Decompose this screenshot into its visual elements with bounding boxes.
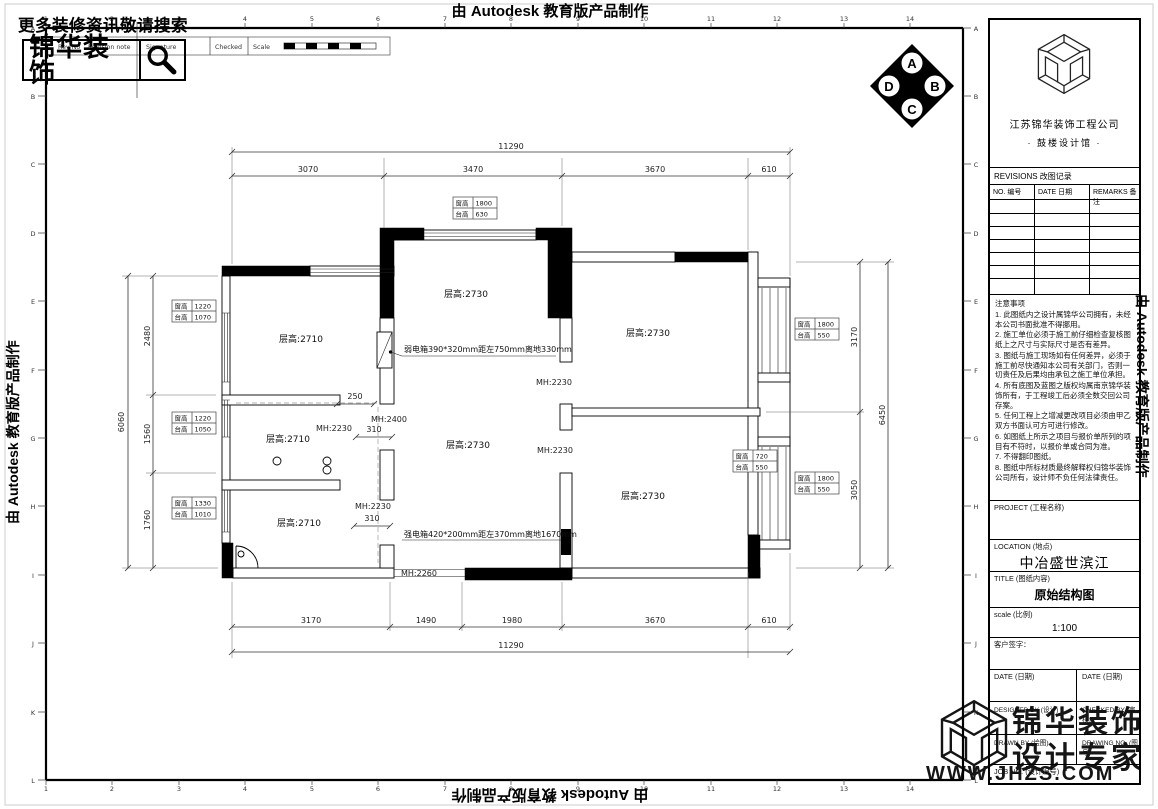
ruler-letter: B xyxy=(974,93,978,101)
brand-name: 锦华装饰 xyxy=(24,34,139,86)
ruler-letter: B xyxy=(31,93,35,101)
room-height-label: 层高:2730 xyxy=(446,439,490,451)
dim-label: 310 xyxy=(364,514,379,523)
sill-height-value: 550 xyxy=(818,332,830,340)
ruler-letter: F xyxy=(31,367,35,375)
room-height-label: 层高:2710 xyxy=(279,333,323,345)
window-table: 窗高 1800 台高 550 xyxy=(795,318,839,340)
sill-height-label: 台高 xyxy=(175,425,189,434)
dim-label: 1980 xyxy=(502,616,522,625)
ruler-letter: D xyxy=(973,230,978,238)
notes-panel: 注意事项 1. 此图纸内之设计属锦华公司拥有，未经本公司书面批准不得挪用。 2.… xyxy=(990,294,1139,500)
ruler-letters-left: A B C D E F G H I J K L xyxy=(30,25,35,785)
dim-label: 3170 xyxy=(850,327,859,347)
note-item: 4. 所有底图及蓝图之版权均属南京锦华装饰所有，于工程竣工后必须全数交回公司存案… xyxy=(995,381,1134,410)
company-cube-logo xyxy=(1032,32,1096,96)
sill-height-value: 1010 xyxy=(195,511,212,519)
dim-label: 11290 xyxy=(498,142,523,151)
ruler-number: 2 xyxy=(110,785,114,793)
door-height-label: MH:2230 xyxy=(536,378,572,387)
project-label: PROJECT (工程名称) xyxy=(990,501,1139,513)
location-value: 中冶盛世滨江 xyxy=(990,553,1139,573)
dim-label: 3070 xyxy=(298,165,318,174)
ruler-letter: F xyxy=(974,367,978,375)
north-compass: A B C D xyxy=(870,44,954,128)
sill-height-label: 台高 xyxy=(798,485,812,494)
window-table: 窗高 1330 台高 1010 xyxy=(172,497,216,519)
ruler-letter: L xyxy=(31,777,35,785)
plan-annotations: 弱电箱390*320mm距左750mm离地330mm 强电箱420*200mm距… xyxy=(404,344,577,539)
window-height-label: 窗高 xyxy=(798,320,812,329)
door-height-label: MH:2230 xyxy=(537,446,573,455)
ruler-letter: G xyxy=(973,435,978,443)
ruler-letter: K xyxy=(974,709,979,717)
door-height-label: MH:2230 xyxy=(316,424,352,433)
brand-search-logo: 锦华装饰 xyxy=(22,39,186,81)
room-height-label: 层高:2730 xyxy=(621,490,665,502)
room-height-label: 层高:2730 xyxy=(626,327,670,339)
plan-door-labels: MH:2230 MH:2400 MH:2230 MH:2230 MH:2230 … xyxy=(316,378,573,578)
sill-height-label: 台高 xyxy=(798,331,812,340)
designed-by-label: DESIGNED BY (设计) xyxy=(990,702,1078,714)
sill-height-value: 550 xyxy=(818,486,830,494)
drawn-by-label: DRAWN BY (绘图) xyxy=(990,735,1078,747)
dim-label: 1760 xyxy=(143,510,152,530)
window-height-value: 720 xyxy=(756,453,768,461)
dim-label: 610 xyxy=(761,165,776,174)
sill-height-value: 1050 xyxy=(195,426,212,434)
company-name: 江苏锦华装饰工程公司 xyxy=(990,116,1139,131)
ruler-letter: E xyxy=(31,298,35,306)
room-height-label: 层高:2710 xyxy=(277,517,321,529)
sill-height-value: 1070 xyxy=(195,314,212,322)
compass-letter-a: A xyxy=(907,56,917,71)
cad-sheet: 1 2 3 4 5 6 7 8 9 10 11 12 13 14 1 2 3 4… xyxy=(0,0,1158,809)
compass-letter-c: C xyxy=(907,102,917,117)
sill-height-label: 台高 xyxy=(456,210,470,219)
window-height-label: 窗高 xyxy=(456,199,470,208)
ruler-letter: J xyxy=(974,640,977,648)
ruler-letter: E xyxy=(974,298,978,306)
note-item: 1. 此图纸内之设计属锦华公司拥有，未经本公司书面批准不得挪用。 xyxy=(995,310,1134,330)
notes-title: 注意事项 xyxy=(995,299,1134,309)
ruler-letter: H xyxy=(31,503,36,511)
checked-label: Checked xyxy=(215,44,242,51)
date-label-left: DATE (日期) xyxy=(990,670,1078,682)
branch-name: · 鼓楼设计馆 · xyxy=(990,136,1139,149)
dim-label: 610 xyxy=(761,616,776,625)
client-signature-label: 客户签字： xyxy=(990,638,1139,650)
window-table: 窗高 1220 台高 1050 xyxy=(172,412,216,434)
door-height-label: MH:2260 xyxy=(401,569,437,578)
revisions-empty-rows xyxy=(990,199,1139,295)
sill-height-label: 台高 xyxy=(736,463,750,472)
window-table: 窗高 1800 台高 630 xyxy=(453,197,497,219)
window-table: 窗高 1220 台高 1070 xyxy=(172,300,216,322)
ruler-letter: A xyxy=(974,25,979,33)
checked-by-label: CHECKED BY (审核) xyxy=(1078,702,1139,724)
note-item: 3. 图纸与施工现场如有任何差异，必须于施工前尽快通知本公司有关部门，否则一切责… xyxy=(995,351,1134,380)
sill-height-value: 630 xyxy=(476,211,488,219)
note-item: 8. 图纸中所标材质最终解释权归锦华装饰公司所有，设计师不负任何法律责任。 xyxy=(995,463,1134,483)
window-height-label: 窗高 xyxy=(175,499,189,508)
room-height-label: 层高:2710 xyxy=(266,433,310,445)
scale-value: 1:100 xyxy=(990,623,1139,634)
note-item: 2. 施工单位必须于施工前仔细检查复核图纸上之尺寸与实际尺寸是否有差异。 xyxy=(995,330,1134,350)
autodesk-banner-bottom: 由 Autodesk 教育版产品制作 xyxy=(137,785,963,806)
window-table: 窗高 720 台高 550 xyxy=(733,450,777,472)
paper-border xyxy=(5,4,1153,805)
window-height-value: 1220 xyxy=(195,303,212,311)
floor-plan-drawing: 1 2 3 4 5 6 7 8 9 10 11 12 13 14 1 2 3 4… xyxy=(0,0,1158,809)
door-height-label: MH:2230 xyxy=(355,502,391,511)
scale-bar xyxy=(284,43,376,49)
dim-label: 310 xyxy=(366,425,381,434)
window-height-value: 1800 xyxy=(818,475,835,483)
ruler-letters-right: A B C D E F G H I J K L xyxy=(973,25,978,785)
drawing-frame xyxy=(38,23,971,785)
dim-label: 3470 xyxy=(463,165,483,174)
date-label-right: DATE (日期) xyxy=(1078,670,1122,682)
compass-letter-d: D xyxy=(884,79,893,94)
compass-letter-b: B xyxy=(930,79,939,94)
dim-label: 3670 xyxy=(645,616,665,625)
window-height-label: 窗高 xyxy=(175,302,189,311)
window-height-label: 窗高 xyxy=(736,452,750,461)
strong-current-box-note: 强电箱420*200mm距左370mm离地1670mm xyxy=(404,529,577,539)
drawing-no-label: DRAWING NO. (图号) xyxy=(1078,735,1139,757)
dim-label: 1560 xyxy=(143,424,152,444)
window-height-value: 1800 xyxy=(476,200,493,208)
sill-height-value: 550 xyxy=(756,464,768,472)
dim-label: 11290 xyxy=(498,641,523,650)
ruler-letter: G xyxy=(30,435,35,443)
sill-height-label: 台高 xyxy=(175,510,189,519)
dim-label: 1490 xyxy=(416,616,436,625)
autodesk-banner-left: 由 Autodesk 教育版产品制作 xyxy=(3,340,23,524)
dim-label: 6450 xyxy=(878,405,887,425)
window-height-label: 窗高 xyxy=(798,474,812,483)
title-block: 江苏锦华装饰工程公司 · 鼓楼设计馆 · REVISIONS 改图记录 NO. … xyxy=(988,18,1141,785)
ruler-letter: H xyxy=(974,503,979,511)
dim-label: 6060 xyxy=(117,412,126,432)
dim-label: 3050 xyxy=(850,480,859,500)
dim-label: 3170 xyxy=(301,616,321,625)
sheet-title-label: TITLE (图纸内容) xyxy=(990,572,1139,584)
ruler-letter: L xyxy=(974,777,978,785)
note-item: 6. 如图纸上所示之项目与报价单所列的项目有不符时，以报价单或合同为准。 xyxy=(995,432,1134,452)
weak-current-box-note: 弱电箱390*320mm距左750mm离地330mm xyxy=(404,344,572,354)
job-no-label: JOB NO. (设计编号) xyxy=(990,765,1139,777)
ruler-letter: I xyxy=(32,572,34,580)
window-height-value: 1330 xyxy=(195,500,212,508)
ruler-letter: I xyxy=(975,572,977,580)
ruler-letter: C xyxy=(974,161,979,169)
window-height-label: 窗高 xyxy=(175,414,189,423)
scale-label: scale (比例) xyxy=(990,608,1139,620)
window-height-value: 1800 xyxy=(818,321,835,329)
window-height-value: 1220 xyxy=(195,415,212,423)
ruler-letter: J xyxy=(31,640,34,648)
ruler-letter: C xyxy=(31,161,36,169)
ruler-letter: K xyxy=(31,709,36,717)
ruler-letter: D xyxy=(30,230,35,238)
revisions-title: REVISIONS 改图记录 xyxy=(990,167,1139,184)
window-table: 窗高 1800 台高 550 xyxy=(795,472,839,494)
dim-label: 250 xyxy=(347,392,362,401)
sill-height-label: 台高 xyxy=(175,313,189,322)
location-label: LOCATION (地点) xyxy=(990,540,1139,552)
search-icon xyxy=(141,43,184,77)
dim-label: 2480 xyxy=(143,326,152,346)
scale-label: Scale xyxy=(253,44,270,51)
door-height-label: MH:2400 xyxy=(371,415,407,424)
dim-label: 3670 xyxy=(645,165,665,174)
ruler-number: 1 xyxy=(44,785,48,793)
autodesk-banner-top: 由 Autodesk 教育版产品制作 xyxy=(137,0,963,21)
note-item: 7. 不得翻印图纸。 xyxy=(995,452,1134,462)
room-height-label: 层高:2730 xyxy=(444,288,488,300)
note-item: 5. 任何工程上之增减更改项目必须由甲乙双方书面认可方可进行修改。 xyxy=(995,411,1134,431)
sheet-title-value: 原始结构图 xyxy=(990,586,1139,603)
